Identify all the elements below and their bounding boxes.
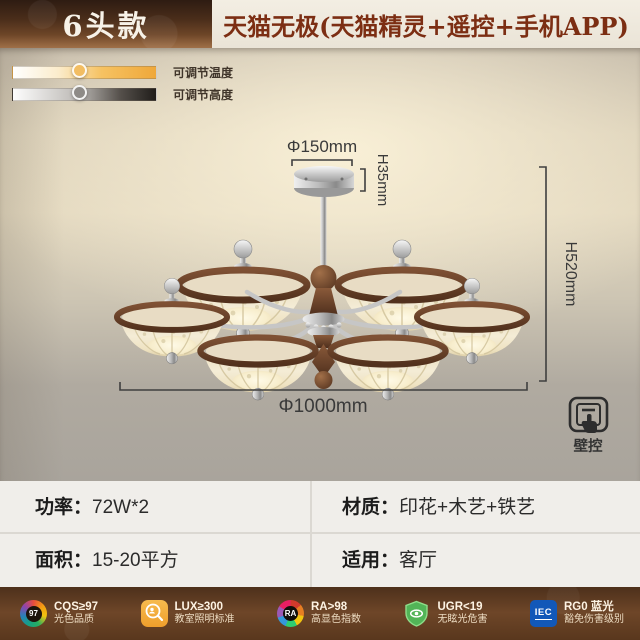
iec-logo-icon: IEC [530,600,557,627]
cert-ugr-line2: 无眩光危害 [437,614,487,626]
spec-usage-value: 客厅 [399,550,437,571]
spec-power-value: 72W*2 [92,497,149,518]
ra-color-wheel-icon: RA [277,600,304,627]
product-poster: 6头款 天猫无极(天猫精灵+遥控+手机APP) 可调节温度 可调节高度 [0,0,640,640]
cert-iec-line1: RG0 蓝光 [564,601,624,614]
spec-material: 材质：印花+木艺+铁艺 [312,481,640,532]
canopy-diameter-label: Φ150mm [287,137,357,156]
wall-control-label: 壁控 [574,437,603,455]
cert-ugr: UGR<19 无眩光危害 [403,600,487,627]
ugr-shield-eye-icon [403,600,430,627]
cert-ra-line2: 高显色指数 [311,614,361,626]
fixture-height-label: H520mm [562,242,579,307]
spec-area-label: 面积： [35,550,92,571]
spec-row-1: 功率：72W*2 材质：印花+木艺+铁艺 [0,481,640,534]
cert-cqs-line2: 光色品质 [54,614,98,626]
cert-iec-line2: 豁免伤害级别 [564,614,624,626]
spec-table: 功率：72W*2 材质：印花+木艺+铁艺 面积：15-20平方 适用：客厅 [0,481,640,587]
iec-logo-text: IEC [535,607,552,620]
cqs-badge-number: 97 [26,606,42,622]
ra-wheel-label: RA [283,606,298,621]
cert-lux-line1: LUX≥300 [175,601,235,614]
cert-cqs-line1: CQS≥97 [54,601,98,614]
cert-ra-line1: RA>98 [311,601,361,614]
spec-area: 面积：15-20平方 [0,534,312,587]
spec-material-value: 印花+木艺+铁艺 [399,497,535,518]
canopy-height-label: H35mm [374,154,391,207]
spec-usage-label: 适用： [342,550,399,571]
certification-bar: 97 CQS≥97 光色品质 LUX≥300 教室照明标准 [0,587,640,640]
fixture-diameter-label: Φ1000mm [278,396,367,417]
cert-ra: RA RA>98 高显色指数 [277,600,361,627]
cert-ugr-line1: UGR<19 [437,601,487,614]
cert-lux: LUX≥300 教室照明标准 [141,600,235,627]
product-photo-area: 可调节温度 可调节高度 [0,48,640,481]
cert-iec: IEC RG0 蓝光 豁免伤害级别 [530,600,624,627]
cert-lux-line2: 教室照明标准 [175,614,235,626]
product-title: 天猫无极(天猫精灵+遥控+手机APP) [212,0,640,48]
spec-usage: 适用：客厅 [312,534,640,587]
lux-magnifier-icon [141,600,168,627]
spec-row-2: 面积：15-20平方 适用：客厅 [0,534,640,587]
wall-control-icon [570,398,607,433]
header: 6头款 天猫无极(天猫精灵+遥控+手机APP) [0,0,640,48]
cqs-badge-icon: 97 [20,600,47,627]
cert-cqs: 97 CQS≥97 光色品质 [20,600,98,627]
variant-badge: 6头款 [0,0,212,48]
chandelier-diagram: Φ150mm H35mm H520mm Φ1000mm 壁控 [0,48,640,481]
spec-material-label: 材质： [342,497,399,518]
spec-area-value: 15-20平方 [92,550,179,571]
spec-power: 功率：72W*2 [0,481,312,532]
ceiling-mount [294,166,354,272]
spec-power-label: 功率： [35,497,92,518]
